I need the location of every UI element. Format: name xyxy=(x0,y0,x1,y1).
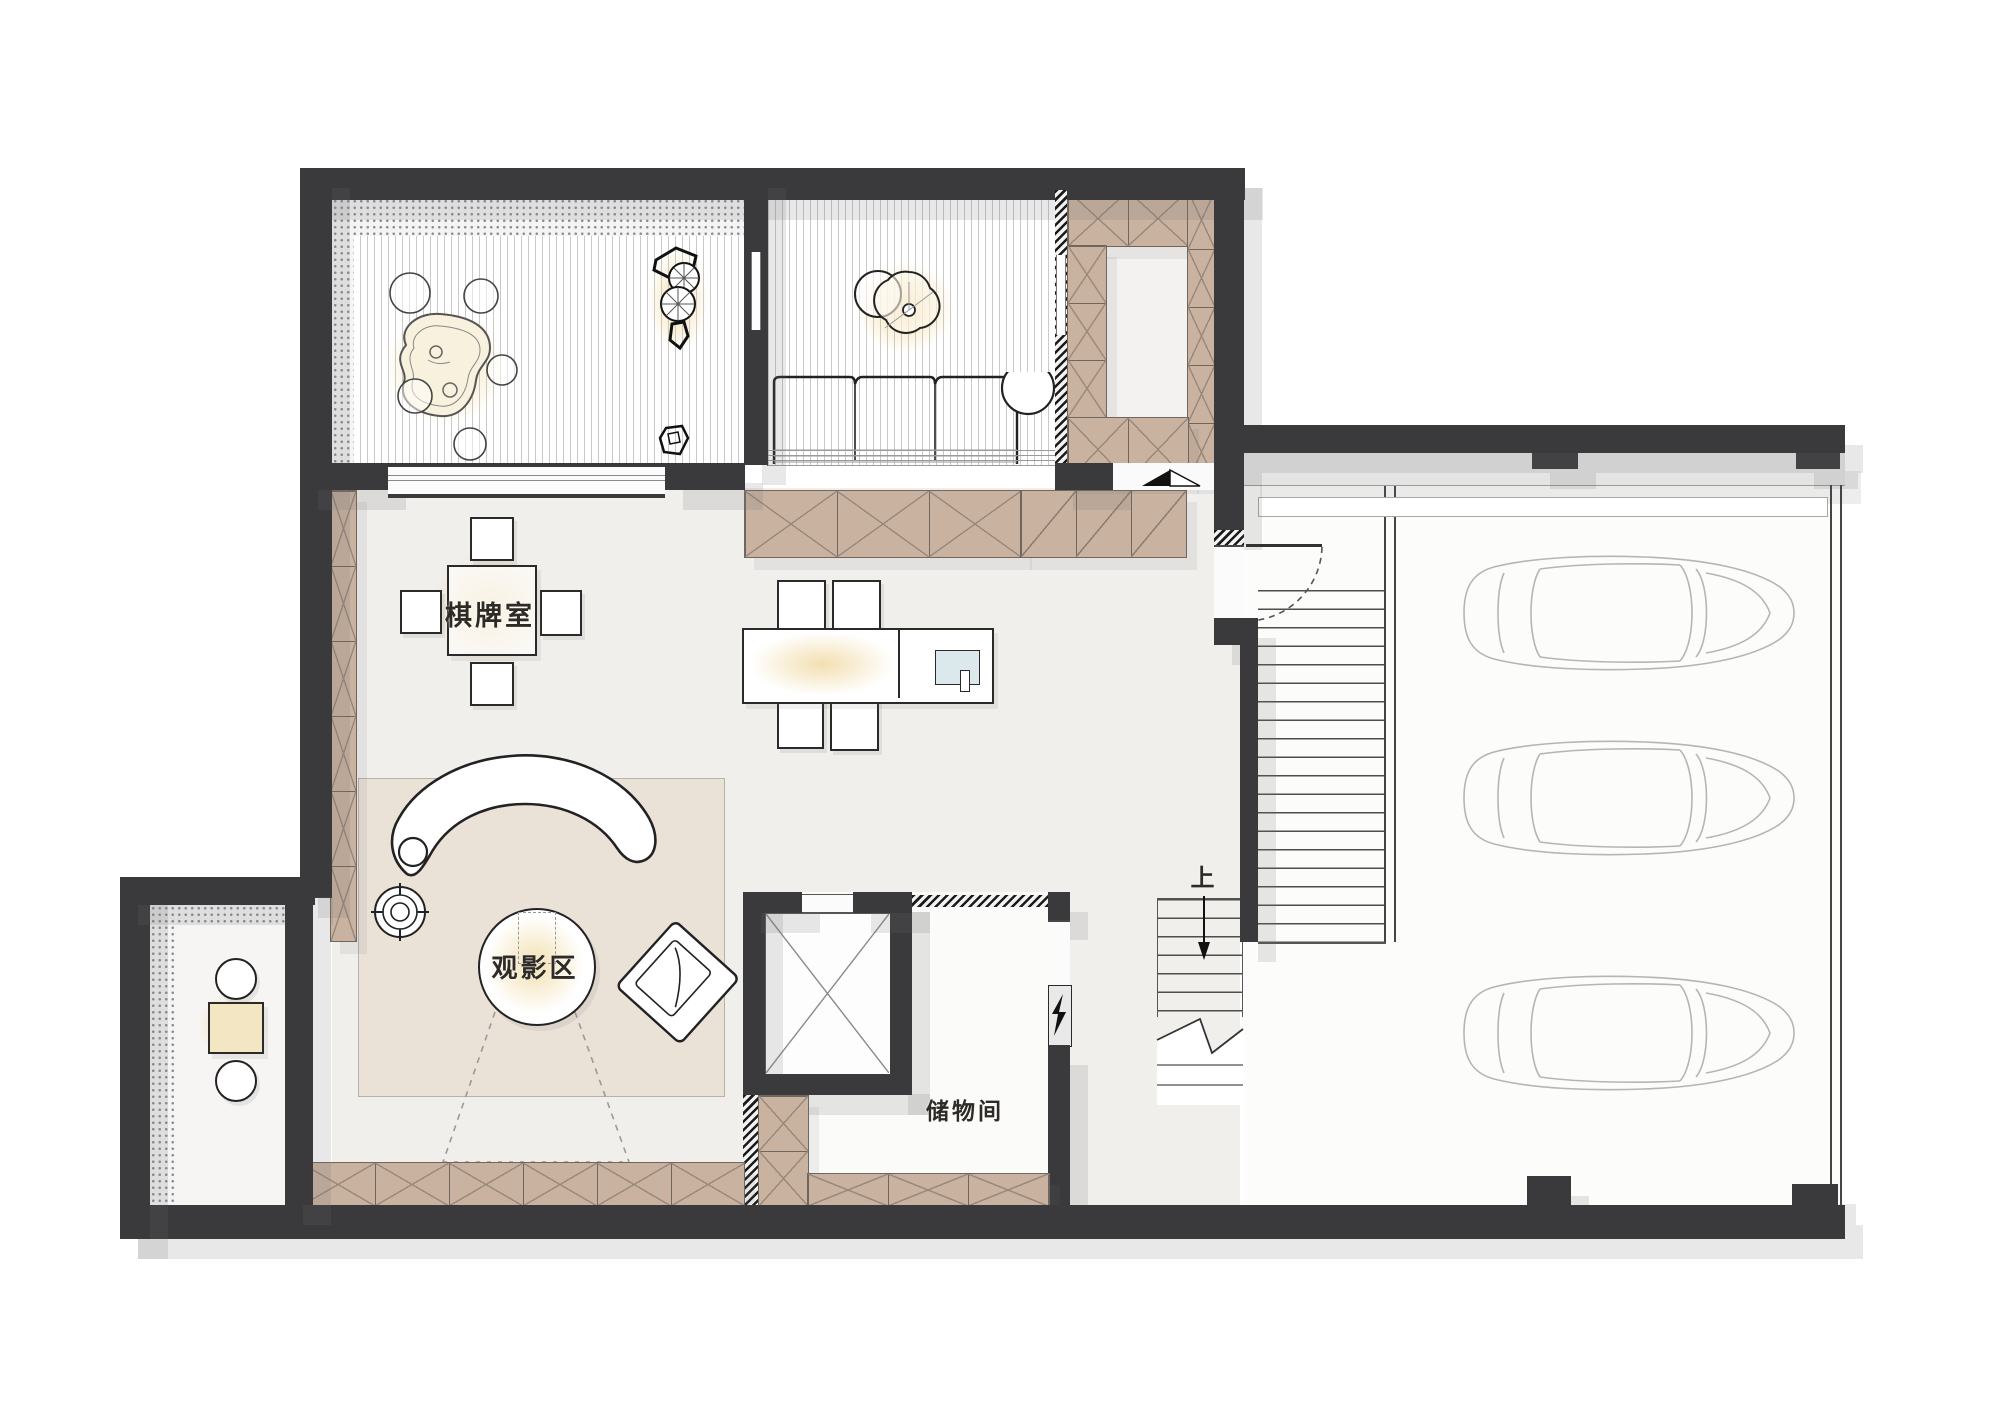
floor-plan-canvas: 棋牌室 观影区 xyxy=(0,0,2000,1413)
glass-partition xyxy=(1056,255,1066,335)
window-mullion xyxy=(388,475,665,476)
glass-partition xyxy=(751,252,761,330)
cabinet-top-row xyxy=(744,490,1022,558)
desk-glow xyxy=(750,632,895,696)
flower-table xyxy=(845,258,960,358)
cabinet-below-elevator xyxy=(758,1095,809,1207)
exterior-wall-top xyxy=(300,168,1245,200)
window-band xyxy=(388,463,665,498)
storage-top-wall xyxy=(912,895,1050,907)
stair-up-arrow-icon xyxy=(1194,896,1214,962)
elevator-wall xyxy=(743,1074,912,1095)
elevator-door-gap xyxy=(802,894,853,913)
exterior-wall-right xyxy=(1214,168,1244,530)
door-swing-icon xyxy=(1244,547,1326,627)
chess-chair xyxy=(470,662,514,706)
storage-wall xyxy=(1048,1045,1070,1205)
exterior-wall-left xyxy=(300,168,332,898)
garage-top-wall xyxy=(1244,425,1845,453)
elevator-wall xyxy=(853,892,912,913)
plant-icon xyxy=(638,240,713,355)
storage-door-opening xyxy=(1048,920,1070,987)
garage-door-jamb xyxy=(1796,453,1840,469)
garage-wall-notch xyxy=(1792,1184,1838,1205)
closet-wardrobe-left xyxy=(1067,245,1107,419)
elevator-wall xyxy=(743,892,802,913)
stair-jog-wall xyxy=(1214,618,1258,645)
annex-table xyxy=(208,1002,264,1054)
exterior-wall-bottom xyxy=(120,1205,1845,1239)
chess-chair xyxy=(470,517,514,561)
desk-chair xyxy=(777,698,824,749)
chess-room-label: 棋牌室 xyxy=(430,594,550,633)
lounge-chair xyxy=(612,918,742,1048)
garage-wall-notch xyxy=(1527,1176,1571,1205)
annex-separator-wall xyxy=(285,905,313,1205)
cabinet-bottom-left xyxy=(300,1162,745,1207)
closet-wardrobe-right xyxy=(1187,190,1216,482)
hall-top-wall xyxy=(300,463,388,490)
cabinet-bottom-right xyxy=(807,1173,1050,1207)
stair-divider-wall xyxy=(1240,645,1258,942)
cabinet-top-row-wardrobe xyxy=(1020,490,1187,558)
annex-wall-left xyxy=(120,877,150,1239)
stud-wall xyxy=(1214,530,1244,545)
stud-wall xyxy=(743,1095,758,1205)
rock-icon xyxy=(658,424,690,458)
hall-top-wall-right xyxy=(1055,463,1113,490)
annex-stool xyxy=(215,958,257,1000)
threshold-marker-icon xyxy=(1140,466,1204,488)
laptop-icon xyxy=(935,650,980,685)
laptop-mouse xyxy=(960,670,970,692)
desk-chair xyxy=(832,580,881,632)
storage-room-label: 储物间 xyxy=(915,1092,1015,1126)
gravel-border xyxy=(150,905,287,925)
floor-speaker-icon xyxy=(370,882,430,942)
elevator-wall xyxy=(743,892,765,1095)
storage-wall xyxy=(1048,892,1070,920)
hall-top-wall xyxy=(665,463,745,490)
garage-cars xyxy=(1244,485,1844,1207)
tatami-left-wall xyxy=(744,408,768,465)
window-mullion xyxy=(388,480,665,481)
gravel-border xyxy=(150,905,177,1205)
gravel-border xyxy=(332,198,744,236)
annex-stool xyxy=(215,1060,257,1102)
stair-door-opening xyxy=(1214,545,1244,622)
elevator-cross-icon xyxy=(766,914,889,1073)
annex-wall-top xyxy=(120,877,315,905)
stair-up-label: 上 xyxy=(1186,858,1222,893)
stepping-stones xyxy=(345,250,635,480)
movie-area-label: 观影区 xyxy=(475,948,595,985)
garage-door-jamb xyxy=(1532,453,1578,469)
lightning-bolt-icon xyxy=(1049,992,1069,1038)
closet-room-floor xyxy=(1105,245,1187,417)
desk-chair xyxy=(830,698,879,751)
desk-chair xyxy=(777,580,826,632)
tatami-platform-step xyxy=(768,450,1060,466)
cabinet-left-wall xyxy=(330,490,357,942)
garage-right-wall xyxy=(1830,485,1842,1207)
desk-divider xyxy=(898,630,900,698)
elevator-wall xyxy=(890,892,912,1095)
break-line-icon xyxy=(1152,1005,1247,1105)
